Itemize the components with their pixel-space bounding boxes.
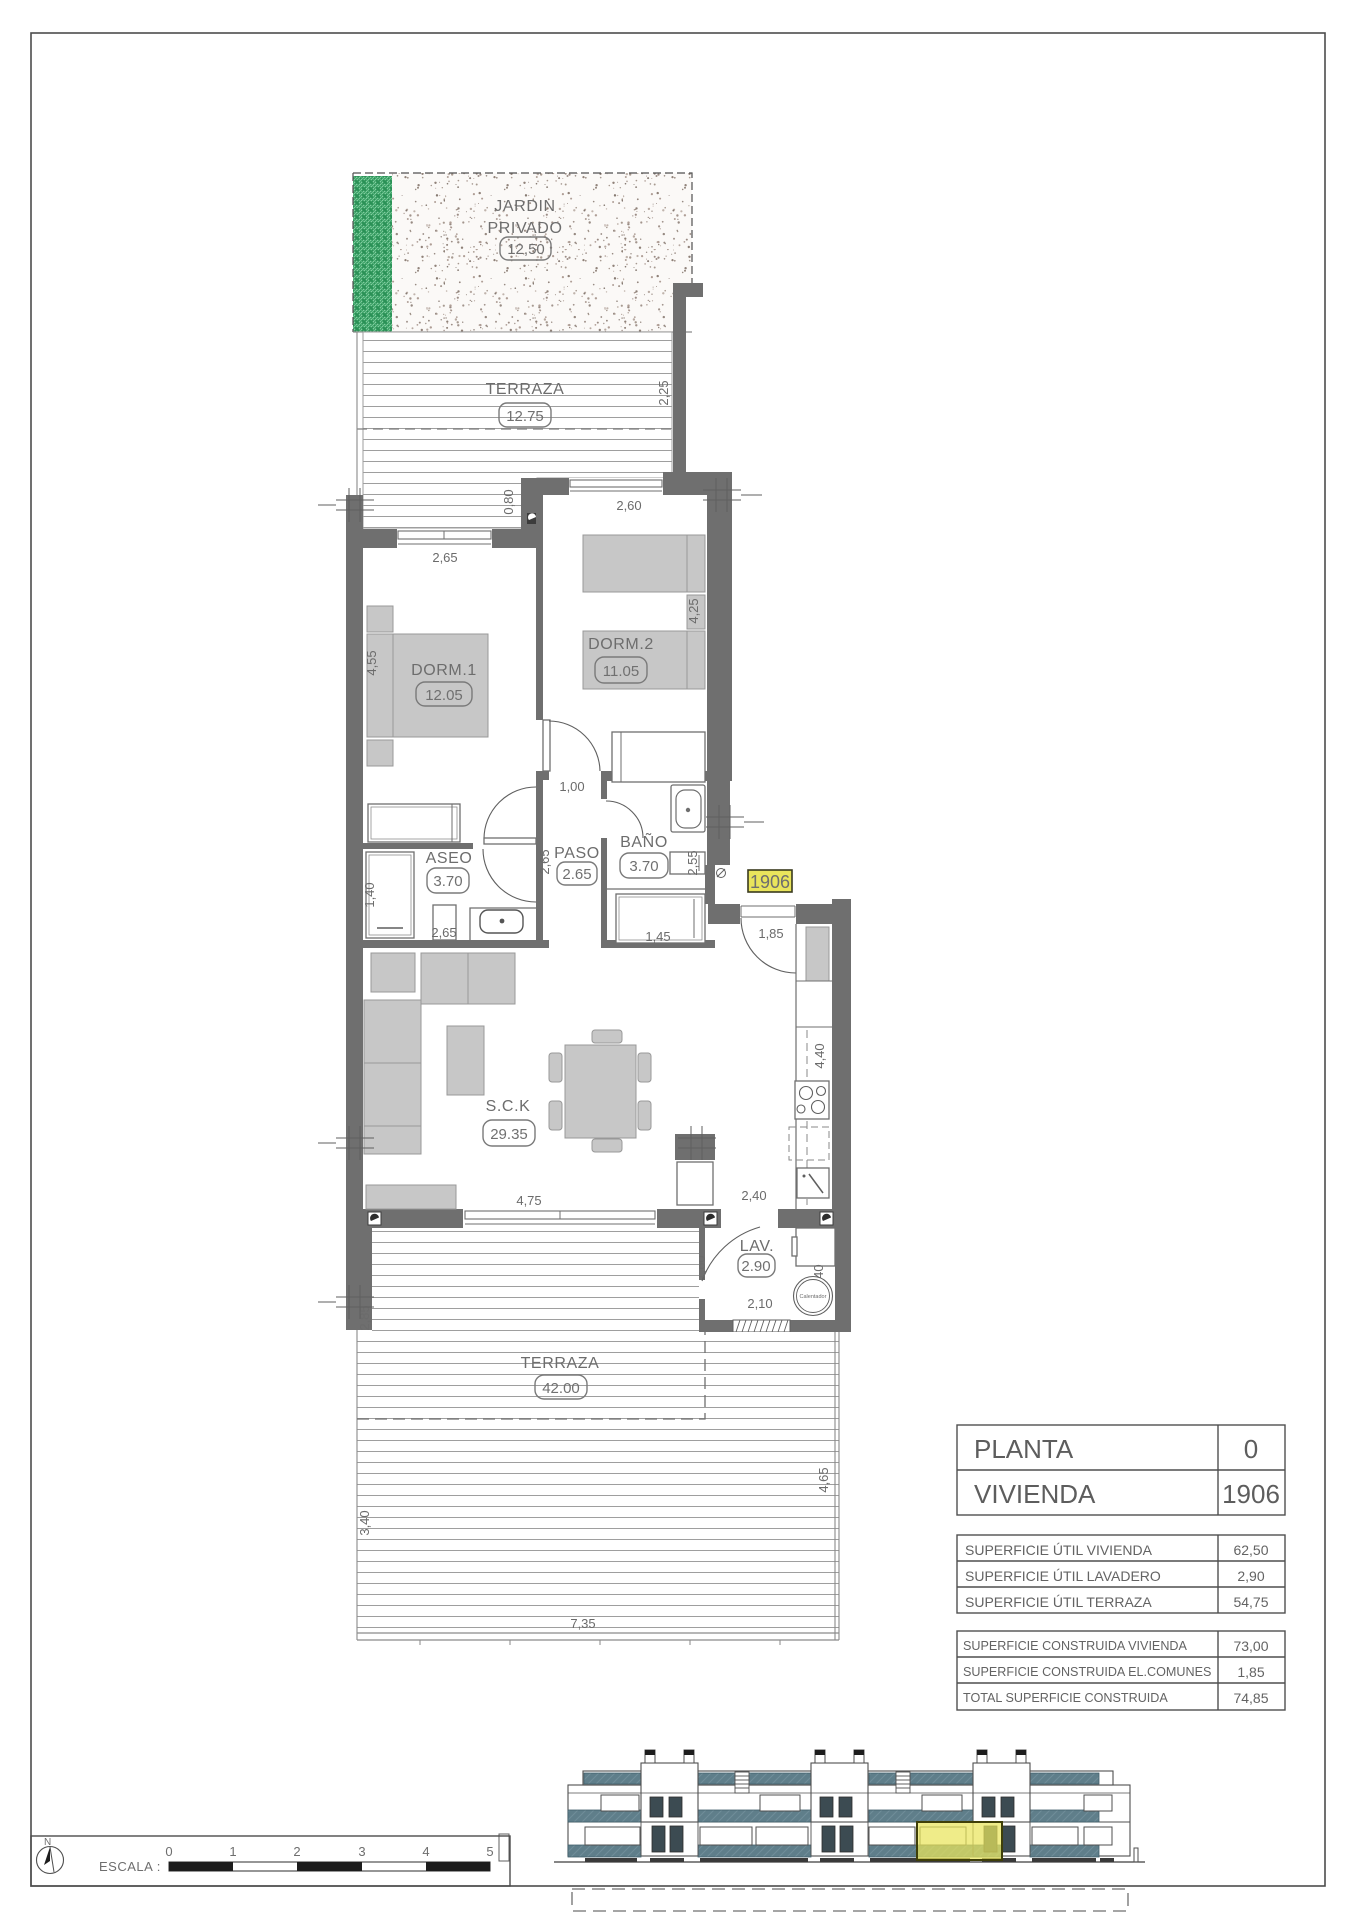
svg-text:3: 3 — [358, 1844, 365, 1859]
svg-text:TOTAL SUPERFICIE CONSTRUIDA: TOTAL SUPERFICIE CONSTRUIDA — [963, 1691, 1168, 1705]
svg-text:2,65: 2,65 — [431, 925, 456, 940]
svg-text:1906: 1906 — [1222, 1479, 1280, 1509]
svg-text:62,50: 62,50 — [1233, 1542, 1268, 1558]
svg-text:2.90: 2.90 — [741, 1258, 770, 1275]
svg-text:2,85: 2,85 — [357, 1305, 372, 1330]
svg-text:1,85: 1,85 — [1237, 1664, 1264, 1680]
svg-text:2,10: 2,10 — [747, 1296, 772, 1311]
svg-text:S.C.K: S.C.K — [486, 1098, 531, 1115]
svg-text:TERRAZA: TERRAZA — [521, 1355, 600, 1372]
svg-text:12.05: 12.05 — [425, 687, 463, 704]
svg-text:SUPERFICIE CONSTRUIDA VIVIENDA: SUPERFICIE CONSTRUIDA VIVIENDA — [963, 1639, 1188, 1653]
svg-text:PLANTA: PLANTA — [974, 1434, 1074, 1464]
svg-text:3.70: 3.70 — [629, 858, 658, 875]
svg-text:74,85: 74,85 — [1233, 1690, 1268, 1706]
svg-text:0: 0 — [165, 1844, 172, 1859]
svg-text:1,40: 1,40 — [362, 882, 377, 907]
svg-text:1: 1 — [229, 1844, 236, 1859]
svg-text:BAÑO: BAÑO — [620, 831, 668, 851]
svg-text:4,55: 4,55 — [364, 650, 379, 675]
svg-text:SUPERFICIE ÚTIL LAVADERO: SUPERFICIE ÚTIL LAVADERO — [965, 1568, 1161, 1584]
svg-text:42.00: 42.00 — [542, 1380, 580, 1397]
svg-text:2,40: 2,40 — [741, 1188, 766, 1203]
svg-text:2,90: 2,90 — [1237, 1568, 1264, 1584]
svg-text:29.35: 29.35 — [490, 1126, 528, 1143]
svg-text:2.65: 2.65 — [562, 866, 591, 883]
svg-text:DORM.2: DORM.2 — [588, 636, 654, 653]
svg-text:2,25: 2,25 — [656, 380, 671, 405]
svg-text:4: 4 — [422, 1844, 429, 1859]
svg-text:LAV.: LAV. — [740, 1238, 774, 1255]
svg-text:TERRAZA: TERRAZA — [486, 381, 565, 398]
svg-text:1,00: 1,00 — [559, 779, 584, 794]
svg-text:2,55: 2,55 — [685, 850, 700, 875]
svg-text:Calentador: Calentador — [800, 1294, 827, 1300]
svg-text:4,75: 4,75 — [516, 1193, 541, 1208]
svg-text:JARDIN: JARDIN — [494, 198, 555, 215]
svg-text:7,35: 7,35 — [570, 1616, 595, 1631]
svg-text:SUPERFICIE ÚTIL VIVIENDA: SUPERFICIE ÚTIL VIVIENDA — [965, 1542, 1153, 1558]
svg-text:SUPERFICIE CONSTRUIDA EL.COMUN: SUPERFICIE CONSTRUIDA EL.COMUNES — [963, 1665, 1211, 1679]
svg-text:2,65: 2,65 — [432, 550, 457, 565]
svg-text:SUPERFICIE ÚTIL TERRAZA: SUPERFICIE ÚTIL TERRAZA — [965, 1594, 1152, 1610]
svg-text:1,85: 1,85 — [758, 926, 783, 941]
svg-text:3.70: 3.70 — [433, 873, 462, 890]
svg-text:2: 2 — [293, 1844, 300, 1859]
svg-text:0,80: 0,80 — [501, 489, 516, 514]
svg-text:3,40: 3,40 — [357, 1510, 372, 1535]
svg-text:54,75: 54,75 — [1233, 1594, 1268, 1610]
svg-text:4,65: 4,65 — [816, 1467, 831, 1492]
svg-text:PRIVADO: PRIVADO — [487, 220, 562, 237]
svg-text:4,25: 4,25 — [686, 598, 701, 623]
svg-text:4,40: 4,40 — [812, 1043, 827, 1068]
svg-text:ESCALA :: ESCALA : — [99, 1859, 161, 1874]
svg-text:1,45: 1,45 — [645, 929, 670, 944]
svg-text:0: 0 — [1244, 1434, 1258, 1464]
svg-text:11.05: 11.05 — [603, 663, 639, 680]
svg-text:2,60: 2,60 — [616, 498, 641, 513]
svg-text:12,50: 12,50 — [507, 241, 545, 258]
svg-text:2,65: 2,65 — [537, 849, 552, 874]
svg-text:VIVIENDA: VIVIENDA — [974, 1479, 1096, 1509]
svg-text:5: 5 — [486, 1844, 493, 1859]
svg-text:DORM.1: DORM.1 — [411, 662, 477, 679]
svg-text:12.75: 12.75 — [506, 408, 544, 425]
svg-text:ASEO: ASEO — [426, 850, 473, 867]
svg-text:73,00: 73,00 — [1233, 1638, 1268, 1654]
svg-text:1906: 1906 — [750, 872, 790, 892]
svg-text:PASO: PASO — [554, 845, 600, 862]
